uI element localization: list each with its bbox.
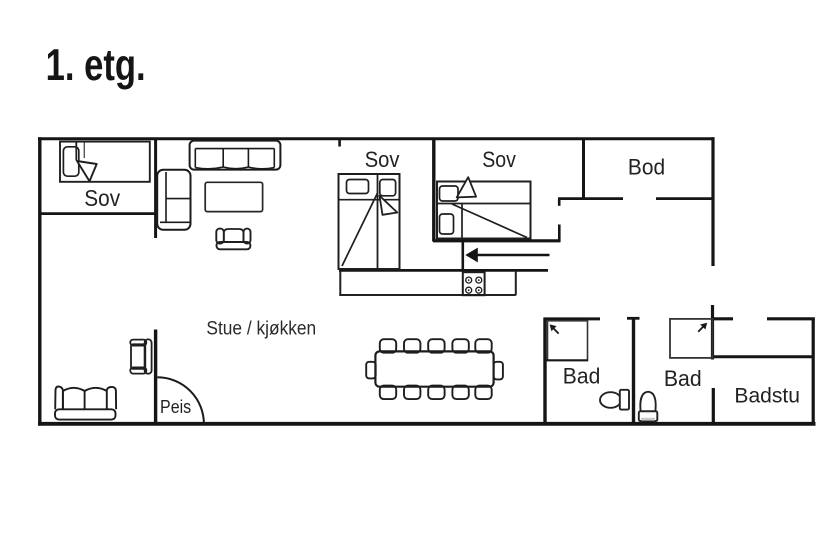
svg-text:Sov: Sov bbox=[365, 147, 400, 172]
svg-text:Bad: Bad bbox=[563, 364, 601, 389]
svg-text:Peis: Peis bbox=[160, 397, 191, 417]
svg-text:1. etg.: 1. etg. bbox=[46, 41, 146, 90]
svg-text:Bad: Bad bbox=[664, 366, 702, 391]
svg-text:Sov: Sov bbox=[482, 147, 516, 172]
svg-text:Sov: Sov bbox=[84, 185, 120, 211]
svg-text:Stue / kjøkken: Stue / kjøkken bbox=[206, 318, 316, 339]
svg-text:Bod: Bod bbox=[628, 154, 665, 179]
svg-text:Badstu: Badstu bbox=[734, 384, 800, 407]
